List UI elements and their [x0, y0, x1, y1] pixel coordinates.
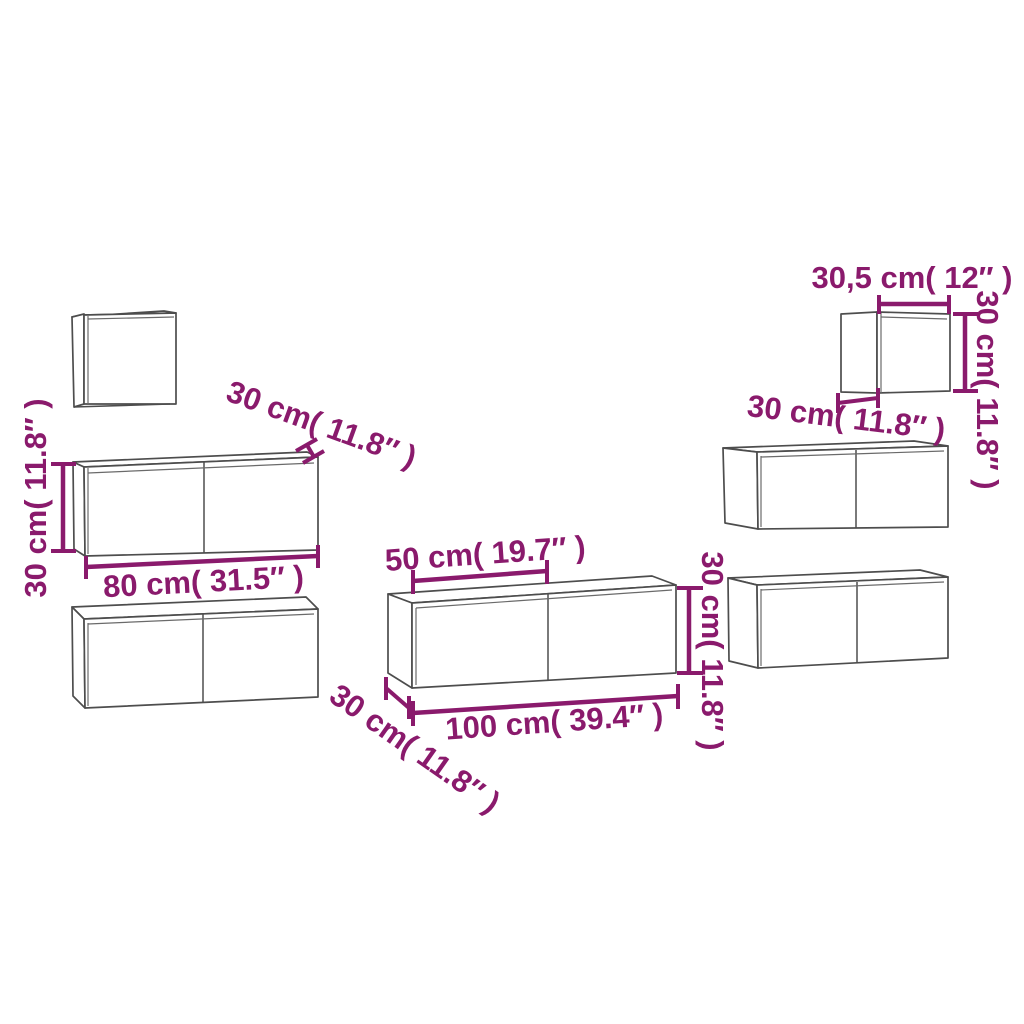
cabinet-side-panel	[72, 314, 84, 407]
diagram-svg: 30 cm( 11.8″ ) 80 cm( 31.5″ ) 30 cm( 11.…	[0, 0, 1024, 1024]
label-center-depth: 30 cm( 11.8″ )	[323, 677, 506, 820]
cabinets-group	[72, 311, 950, 708]
label-center-half-width: 50 cm( 19.7″ )	[384, 529, 587, 578]
cabinet-305mm	[841, 312, 950, 393]
cabinet-right-middle	[723, 441, 948, 529]
cabinet-front-face	[84, 313, 176, 404]
label-left-height: 30 cm( 11.8″ )	[18, 398, 53, 597]
cabinet-100cm	[388, 576, 676, 688]
cabinet-side-panel	[723, 448, 758, 529]
cabinet-right-lower	[728, 570, 948, 668]
cabinet-side-panel	[388, 594, 412, 688]
dimension-diagram: 30 cm( 11.8″ ) 80 cm( 31.5″ ) 30 cm( 11.…	[0, 0, 1024, 1024]
cabinet-front-face	[877, 312, 950, 393]
dimension-line-right-small-width	[879, 295, 949, 314]
dimension-line-left-height	[51, 464, 76, 551]
cabinet-80cm	[73, 452, 318, 556]
label-center-height: 30 cm( 11.8″ )	[695, 551, 730, 750]
cabinet-side-panel	[841, 312, 877, 393]
cabinet-side-panel	[73, 462, 85, 556]
label-right-small-depth: 30 cm( 11.8″ )	[745, 388, 947, 447]
cabinet-side-panel	[72, 607, 85, 708]
label-center-width: 100 cm( 39.4″ )	[444, 696, 664, 746]
label-right-small-height: 30 cm( 11.8″ )	[970, 290, 1005, 489]
cabinet-front-face	[757, 577, 948, 668]
cabinet-front-face	[84, 609, 318, 708]
cabinet-front-face	[757, 446, 948, 529]
cabinet-small-top-left	[72, 311, 176, 407]
cabinet-side-panel	[728, 578, 758, 668]
cabinet-front-face	[412, 585, 676, 688]
cabinet-left-lower	[72, 597, 318, 708]
